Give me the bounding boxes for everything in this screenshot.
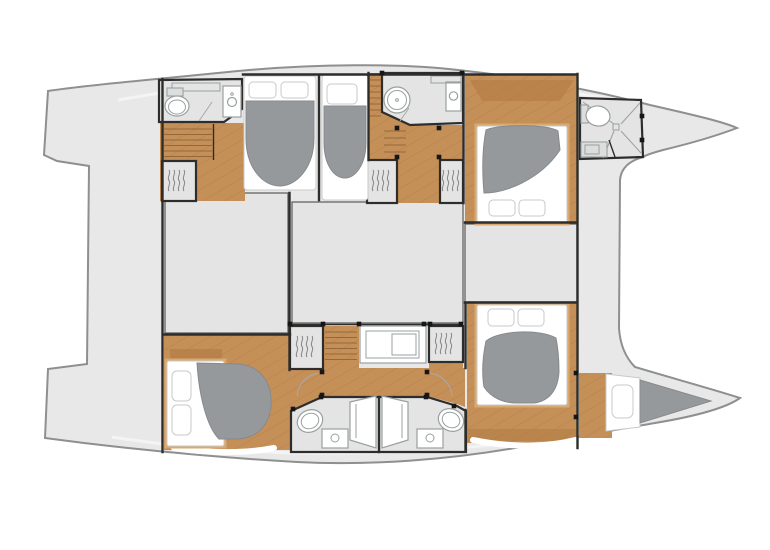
bed-top-mid: [322, 75, 368, 200]
toilet-tank: [167, 88, 183, 96]
salon-floor-center: [292, 202, 463, 323]
bed-bottom-fwd: [476, 304, 568, 406]
vanity-desk: [360, 326, 426, 363]
pillow: [281, 82, 308, 98]
shower-bench: [350, 396, 376, 448]
floor-plan-stage: [0, 0, 770, 550]
pillow: [612, 385, 633, 418]
duvet: [483, 332, 559, 403]
catamaran-floor-plan: [0, 0, 770, 550]
salon-floor-right: [465, 224, 577, 302]
pillow: [172, 405, 191, 435]
bed-bottom-aft: [166, 360, 271, 447]
pillow: [327, 84, 357, 104]
duvet: [324, 106, 366, 178]
wardrobe: [290, 326, 323, 369]
wardrobe: [367, 160, 397, 203]
pillow: [519, 200, 545, 216]
shower-bench: [382, 396, 408, 448]
wood-top-fwd-shelf: [470, 80, 574, 101]
bathroom-bottom-twin: [291, 396, 467, 452]
washbasin-icon: [322, 429, 348, 448]
pillow: [172, 371, 191, 401]
bed-top-fwd: [476, 125, 568, 224]
pillow: [488, 309, 514, 326]
bed-top-aft: [244, 76, 316, 190]
pillow: [518, 309, 544, 326]
pillow: [489, 200, 515, 216]
washbasin-icon: [417, 429, 443, 448]
bathroom-top-fwd: [580, 98, 643, 159]
salon-floor-left: [165, 193, 288, 333]
pillow: [249, 82, 276, 98]
bathroom-top-mid: [382, 73, 463, 125]
bathroom-top-aft: [159, 79, 242, 122]
